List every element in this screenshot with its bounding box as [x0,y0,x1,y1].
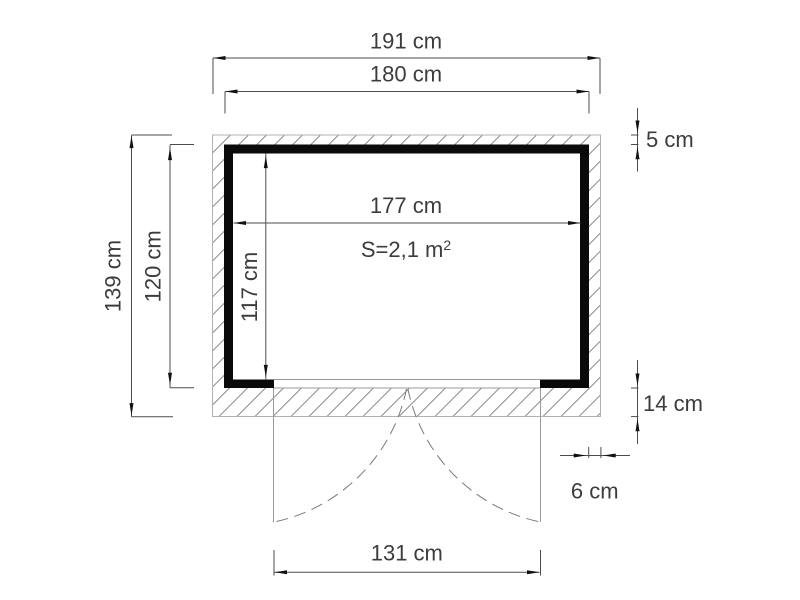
svg-text:180 cm: 180 cm [370,62,442,87]
svg-text:14 cm: 14 cm [643,391,703,416]
svg-text:117 cm: 117 cm [237,252,262,323]
svg-text:177 cm: 177 cm [370,193,442,218]
svg-text:5 cm: 5 cm [646,127,694,152]
svg-text:S=2,1 m2: S=2,1 m2 [361,237,452,262]
svg-text:131 cm: 131 cm [371,541,443,566]
svg-text:191 cm: 191 cm [370,29,442,54]
svg-text:120 cm: 120 cm [140,230,165,302]
svg-text:6 cm: 6 cm [571,479,619,504]
svg-text:139 cm: 139 cm [100,240,125,312]
